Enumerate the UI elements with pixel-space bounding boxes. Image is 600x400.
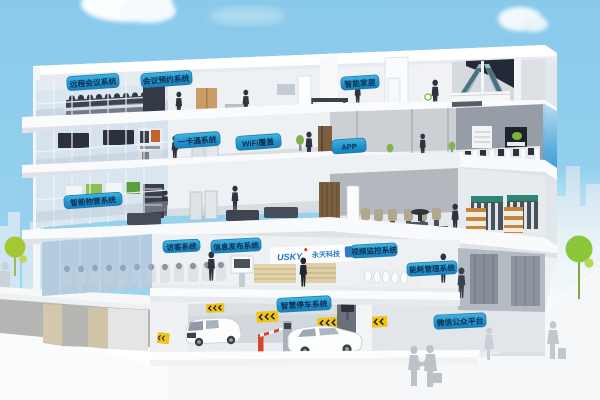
svg-text:APP: APP xyxy=(341,142,357,152)
svg-text:访客系统: 访客系统 xyxy=(166,241,197,253)
svg-text:USKY: USKY xyxy=(277,251,303,262)
